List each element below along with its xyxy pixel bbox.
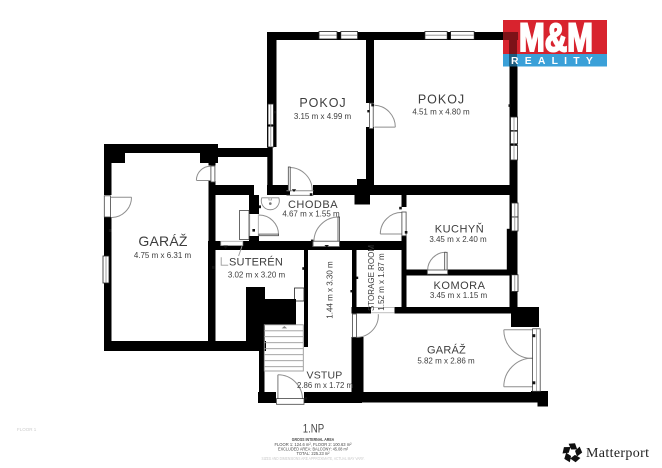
svg-text:SIZES AND DIMENSIONS ARE APPRO: SIZES AND DIMENSIONS ARE APPROXIMATE, AC… (262, 456, 365, 462)
svg-text:REALITY: REALITY (511, 56, 599, 67)
svg-text:1.44 m x 3.30 m: 1.44 m x 3.30 m (326, 261, 335, 319)
svg-text:VSTUP: VSTUP (306, 370, 342, 382)
svg-text:GROSS INTERNAL AREA: GROSS INTERNAL AREA (292, 437, 335, 443)
svg-text:3.15 m x 4.99 m: 3.15 m x 4.99 m (294, 112, 352, 121)
svg-text:Matterport: Matterport (586, 446, 649, 461)
svg-text:POKOJ: POKOJ (299, 96, 346, 110)
svg-text:1.NP: 1.NP (303, 423, 325, 435)
svg-text:GARÁŽ: GARÁŽ (427, 344, 466, 357)
svg-text:SUTERÉN: SUTERÉN (229, 256, 283, 269)
svg-text:4.51 m x 4.80 m: 4.51 m x 4.80 m (412, 108, 470, 117)
svg-text:KUCHYŇ: KUCHYŇ (435, 223, 484, 236)
svg-text:POKOJ: POKOJ (418, 93, 465, 107)
svg-text:GARÁŽ: GARÁŽ (138, 233, 187, 249)
svg-text:3.45 m x 2.40 m: 3.45 m x 2.40 m (429, 235, 487, 244)
svg-text:1.52 m x 1.87 m: 1.52 m x 1.87 m (377, 253, 386, 311)
svg-text:3.02 m x 3.20 m: 3.02 m x 3.20 m (228, 270, 286, 279)
svg-text:4.75 m x 6.31 m: 4.75 m x 6.31 m (134, 251, 192, 260)
svg-text:5.82 m x 2.86 m: 5.82 m x 2.86 m (417, 357, 475, 366)
svg-text:3.45 m x 1.15 m: 3.45 m x 1.15 m (430, 291, 488, 300)
svg-text:M&M: M&M (519, 16, 593, 60)
svg-text:4.67 m x 1.55 m: 4.67 m x 1.55 m (282, 210, 340, 219)
svg-text:2.86 m x 1.72 m: 2.86 m x 1.72 m (297, 381, 353, 390)
svg-text:FLOOR 1: FLOOR 1 (17, 427, 37, 432)
svg-text:STORAGE ROOM: STORAGE ROOM (367, 245, 376, 311)
